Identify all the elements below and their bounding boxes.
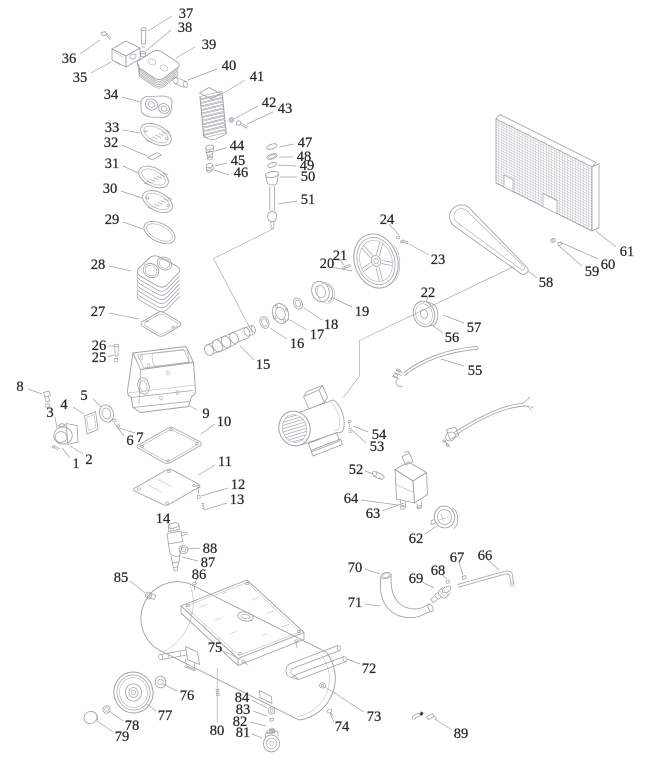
svg-text:79: 79 bbox=[115, 729, 130, 745]
svg-text:80: 80 bbox=[210, 723, 225, 739]
svg-text:57: 57 bbox=[467, 320, 482, 336]
svg-text:19: 19 bbox=[355, 304, 370, 320]
svg-text:52: 52 bbox=[349, 462, 364, 478]
svg-text:22: 22 bbox=[421, 285, 436, 301]
svg-text:42: 42 bbox=[262, 95, 277, 111]
svg-text:44: 44 bbox=[230, 138, 245, 154]
svg-text:53: 53 bbox=[370, 439, 385, 455]
svg-text:12: 12 bbox=[231, 477, 246, 493]
svg-text:32: 32 bbox=[104, 135, 119, 151]
svg-text:13: 13 bbox=[230, 492, 245, 508]
svg-text:31: 31 bbox=[105, 156, 120, 172]
svg-text:89: 89 bbox=[454, 726, 469, 742]
svg-text:69: 69 bbox=[409, 571, 424, 587]
svg-text:61: 61 bbox=[620, 244, 635, 260]
svg-text:25: 25 bbox=[92, 350, 107, 366]
svg-text:10: 10 bbox=[217, 414, 232, 430]
svg-text:38: 38 bbox=[178, 20, 193, 36]
svg-text:41: 41 bbox=[250, 69, 265, 85]
svg-text:14: 14 bbox=[156, 511, 171, 527]
svg-text:5: 5 bbox=[80, 388, 87, 404]
svg-text:66: 66 bbox=[478, 548, 493, 564]
svg-text:62: 62 bbox=[409, 531, 424, 547]
svg-text:8: 8 bbox=[16, 379, 23, 395]
svg-text:71: 71 bbox=[348, 595, 363, 611]
svg-text:9: 9 bbox=[202, 406, 209, 422]
svg-text:28: 28 bbox=[91, 257, 106, 273]
svg-text:24: 24 bbox=[380, 212, 395, 228]
svg-text:60: 60 bbox=[601, 257, 616, 273]
svg-text:68: 68 bbox=[431, 563, 446, 579]
svg-text:72: 72 bbox=[362, 661, 377, 677]
svg-text:51: 51 bbox=[301, 192, 316, 208]
svg-text:29: 29 bbox=[105, 212, 120, 228]
svg-text:59: 59 bbox=[585, 264, 600, 280]
svg-text:36: 36 bbox=[62, 51, 77, 67]
svg-text:15: 15 bbox=[256, 357, 271, 373]
svg-text:11: 11 bbox=[218, 454, 232, 470]
svg-text:85: 85 bbox=[114, 570, 129, 586]
svg-text:6: 6 bbox=[126, 433, 133, 449]
svg-text:74: 74 bbox=[335, 719, 350, 735]
svg-text:77: 77 bbox=[158, 708, 173, 724]
svg-text:7: 7 bbox=[136, 430, 143, 446]
svg-text:81: 81 bbox=[236, 725, 251, 741]
svg-text:4: 4 bbox=[60, 397, 68, 413]
svg-text:34: 34 bbox=[104, 87, 119, 103]
svg-text:56: 56 bbox=[445, 330, 460, 346]
svg-text:1: 1 bbox=[72, 456, 79, 472]
svg-text:20: 20 bbox=[320, 256, 335, 272]
svg-text:46: 46 bbox=[234, 165, 249, 181]
svg-text:3: 3 bbox=[46, 405, 53, 421]
svg-text:70: 70 bbox=[348, 560, 363, 576]
svg-text:67: 67 bbox=[450, 550, 465, 566]
svg-text:73: 73 bbox=[367, 709, 382, 725]
svg-text:30: 30 bbox=[103, 181, 118, 197]
svg-text:63: 63 bbox=[366, 506, 381, 522]
svg-text:33: 33 bbox=[105, 120, 120, 136]
svg-text:39: 39 bbox=[202, 37, 217, 53]
svg-text:16: 16 bbox=[290, 336, 305, 352]
svg-text:18: 18 bbox=[324, 317, 339, 333]
svg-text:2: 2 bbox=[85, 452, 92, 468]
svg-text:64: 64 bbox=[344, 491, 359, 507]
svg-text:27: 27 bbox=[91, 304, 106, 320]
svg-text:76: 76 bbox=[180, 688, 195, 704]
svg-text:55: 55 bbox=[468, 363, 483, 379]
svg-text:40: 40 bbox=[222, 58, 237, 74]
svg-text:17: 17 bbox=[310, 327, 325, 343]
svg-text:35: 35 bbox=[73, 70, 88, 86]
svg-text:50: 50 bbox=[301, 169, 316, 185]
svg-text:58: 58 bbox=[539, 275, 554, 291]
svg-text:43: 43 bbox=[278, 101, 293, 117]
svg-text:86: 86 bbox=[192, 567, 207, 583]
svg-text:23: 23 bbox=[431, 252, 446, 268]
svg-text:75: 75 bbox=[208, 640, 223, 656]
svg-text:21: 21 bbox=[333, 248, 348, 264]
